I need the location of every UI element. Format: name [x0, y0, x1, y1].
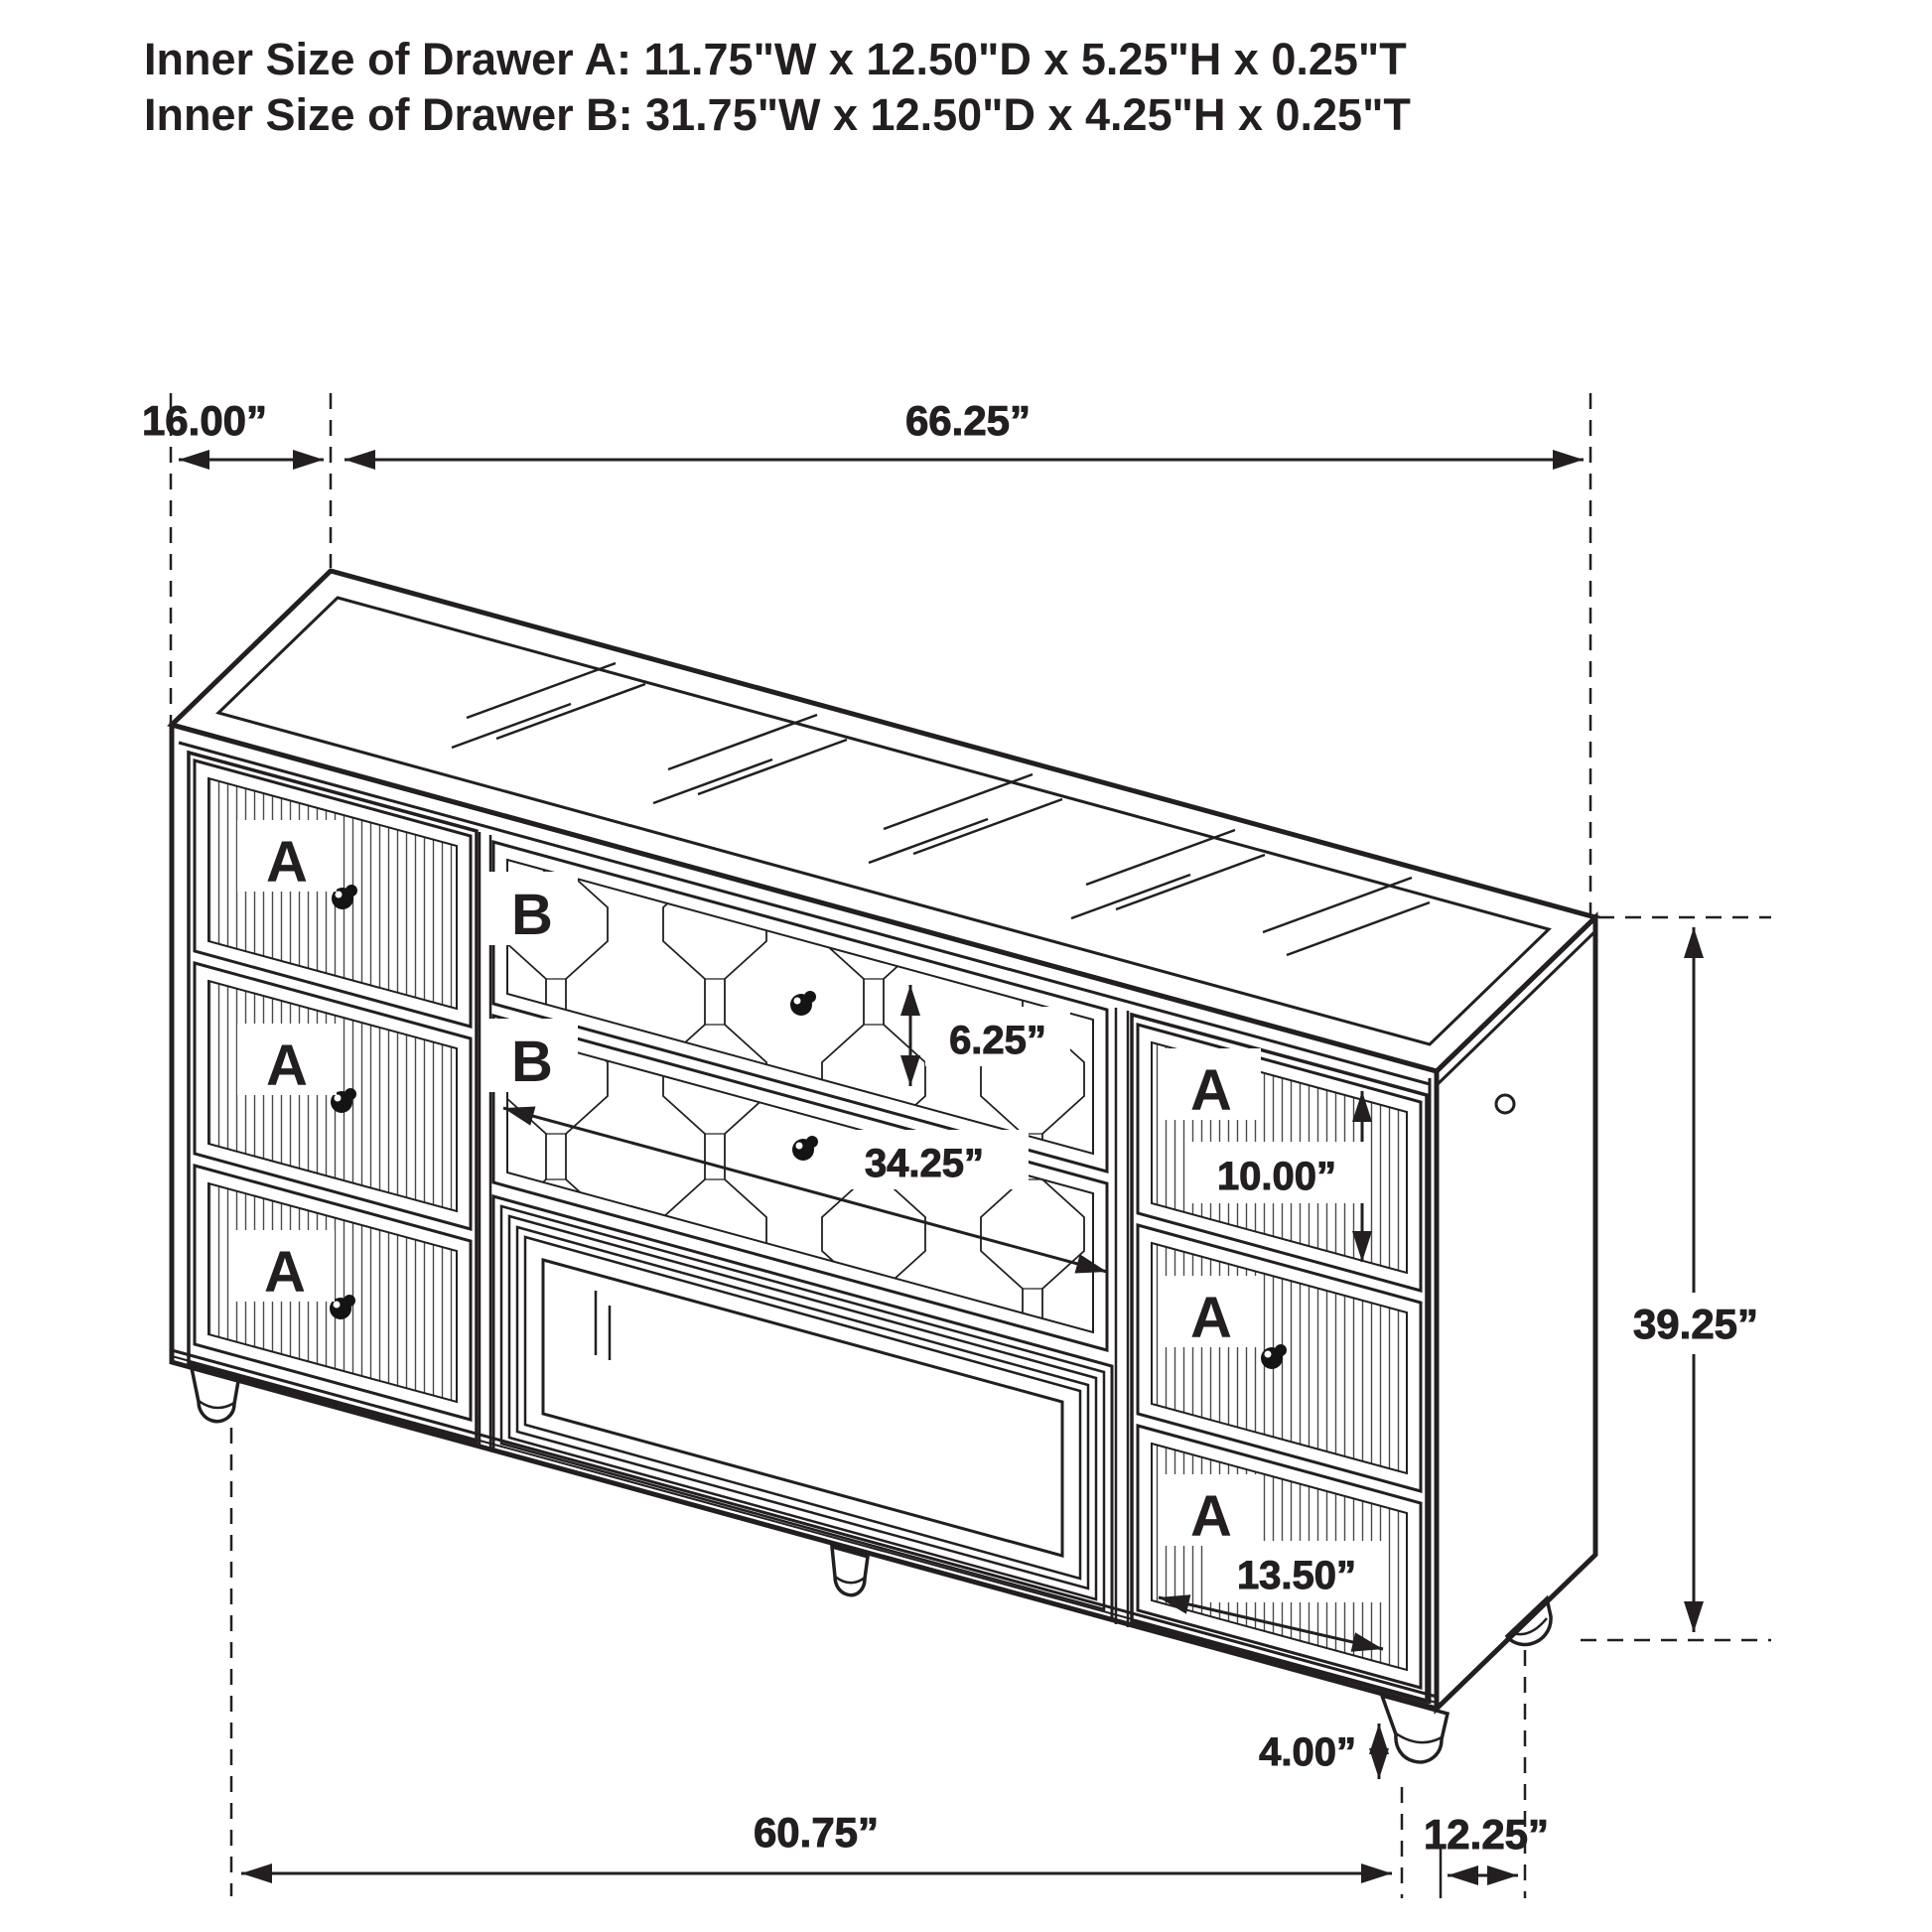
drawer-letter: A — [266, 830, 308, 895]
title-line-2: Inner Size of Drawer B: 31.75"W x 12.50"… — [144, 89, 1411, 140]
drawer-a1 — [195, 760, 471, 1027]
dim-label: 12.25” — [1424, 1811, 1549, 1858]
dim-label: 6.25” — [949, 1019, 1046, 1062]
dim-label: 13.50” — [1237, 1554, 1356, 1597]
leg-middle — [832, 1547, 868, 1595]
drawer-letter: B — [511, 1030, 553, 1094]
drawer-letter: A — [264, 1240, 306, 1305]
panel-glass — [543, 1260, 1062, 1556]
furniture-dimension-diagram: Inner Size of Drawer A: 11.75"W x 12.50"… — [0, 0, 1932, 1932]
dim-label: 10.00” — [1217, 1155, 1336, 1198]
title-line-1: Inner Size of Drawer A: 11.75"W x 12.50"… — [144, 34, 1407, 84]
dim-top-width: 66.25” — [345, 397, 1584, 460]
dim-label: 4.00” — [1259, 1730, 1356, 1774]
label-drawer-a1: A — [237, 820, 337, 895]
dim-label: 16.00” — [142, 397, 267, 444]
dim-label: 66.25” — [905, 397, 1031, 444]
dim-label: 34.25” — [865, 1142, 984, 1185]
label-drawer-a2: A — [237, 1024, 337, 1098]
label-drawer-a6: A — [1162, 1474, 1261, 1549]
dim-top-depth: 16.00” — [142, 397, 324, 460]
drawer-letter: B — [511, 883, 553, 947]
middle-right-divider — [1116, 1008, 1128, 1627]
drawer-letter: A — [1190, 1484, 1232, 1549]
dim-leg-height: 4.00” — [1259, 1724, 1379, 1779]
dim-label: 60.75” — [754, 1809, 879, 1856]
side-peg-hole — [1496, 1095, 1514, 1113]
label-drawer-b2: B — [486, 1019, 578, 1094]
dim-overall-height: 39.25” — [1610, 927, 1789, 1632]
dim-label: 39.25” — [1633, 1301, 1758, 1347]
drawer-letter: A — [1190, 1058, 1232, 1123]
label-drawer-a5: A — [1162, 1276, 1261, 1350]
right-side-face — [1430, 917, 1595, 1709]
title: Inner Size of Drawer A: 11.75"W x 12.50"… — [144, 34, 1411, 140]
dim-bottom-depth: 12.25” — [1424, 1811, 1549, 1875]
dim-bottom-width: 60.75” — [241, 1809, 1392, 1873]
label-drawer-b1: B — [486, 872, 578, 947]
drawer-letter: A — [1190, 1286, 1232, 1350]
label-drawer-a4: A — [1162, 1048, 1261, 1123]
drawer-letter: A — [266, 1034, 308, 1098]
label-drawer-a3: A — [235, 1230, 335, 1305]
